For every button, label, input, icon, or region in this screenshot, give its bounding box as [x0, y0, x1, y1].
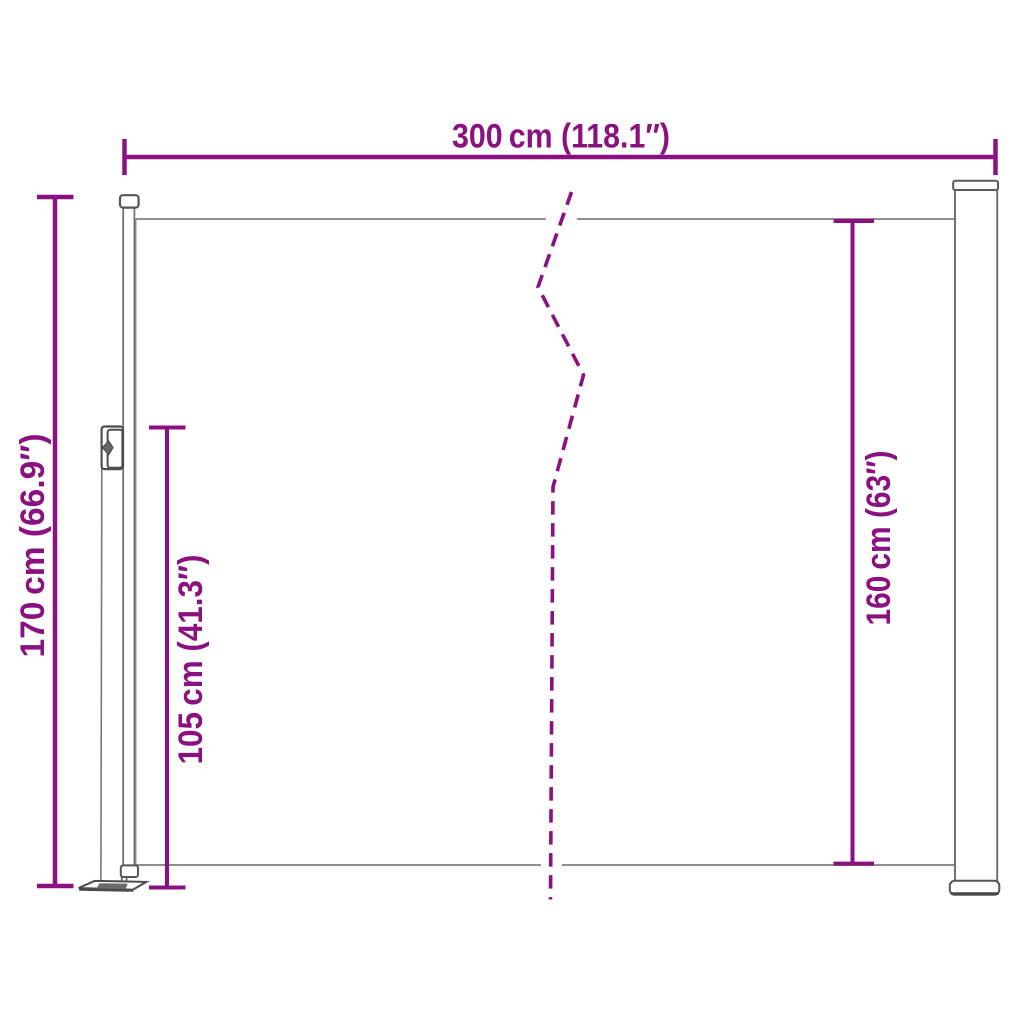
svg-text:105 cm (41.3″): 105 cm (41.3″) [172, 555, 210, 765]
svg-text:300 cm (118.1″): 300 cm (118.1″) [452, 118, 670, 156]
svg-text:170 cm (66.9″): 170 cm (66.9″) [14, 434, 52, 658]
svg-text:160 cm (63″): 160 cm (63″) [860, 451, 898, 626]
